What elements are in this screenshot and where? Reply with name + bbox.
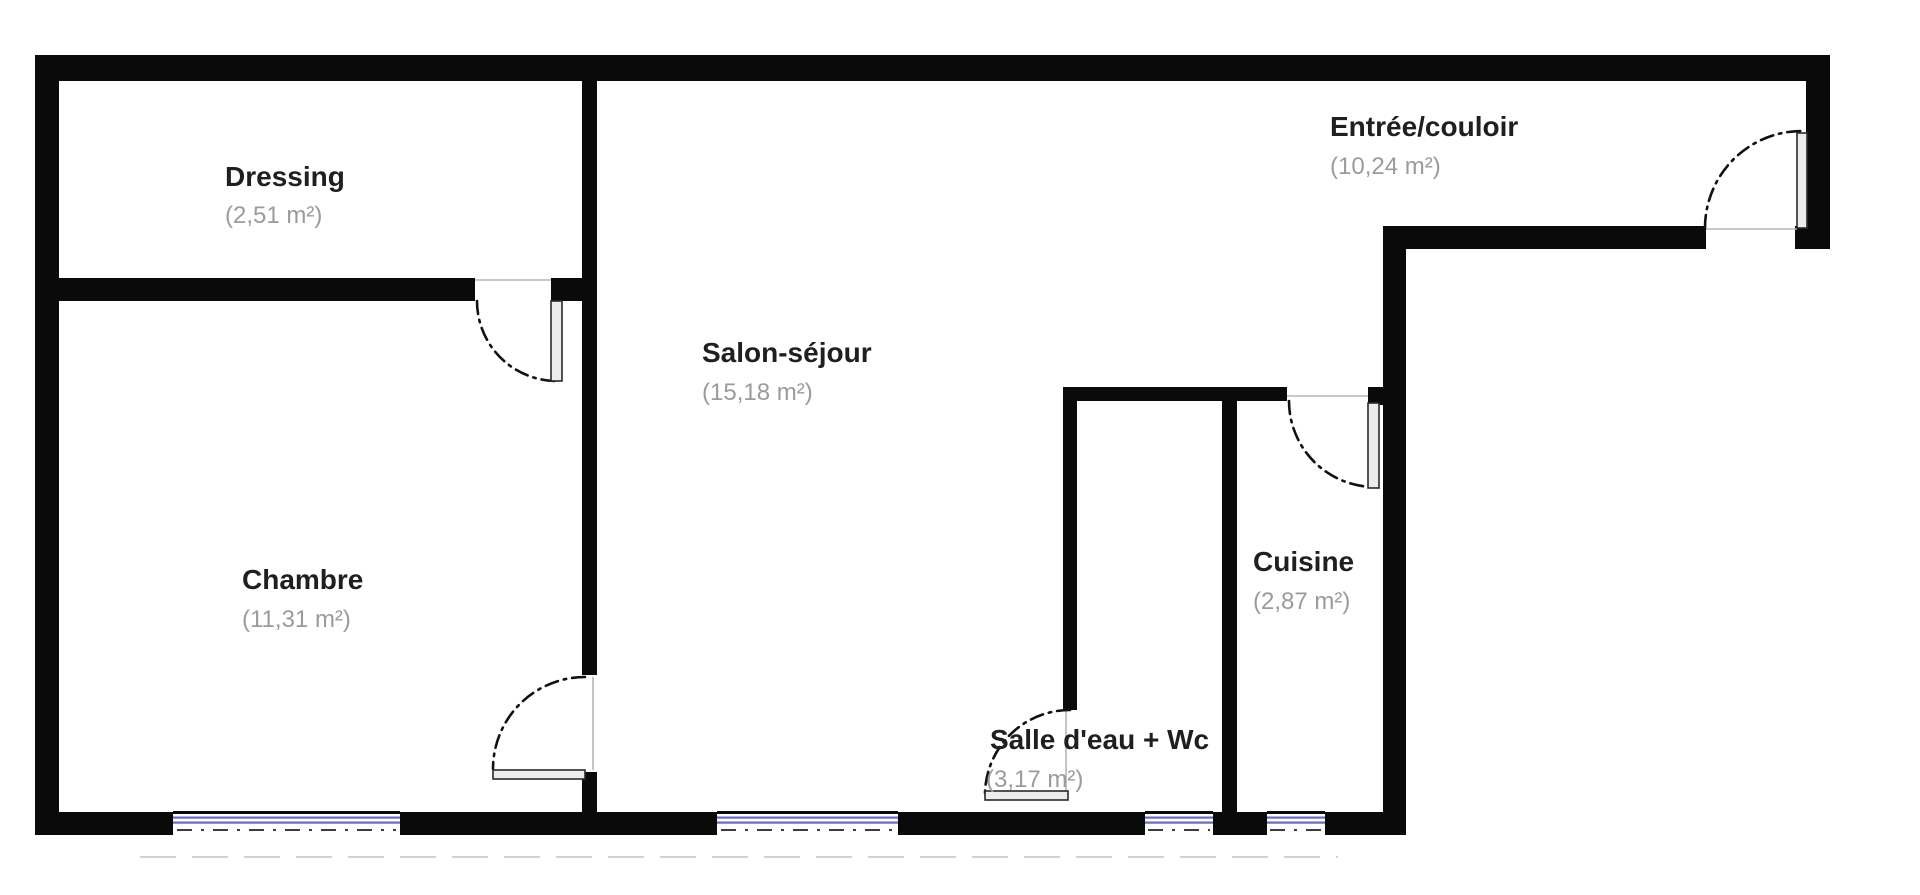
door-swing-arc (1705, 131, 1802, 228)
wall-salle-deau-cuisine-divider (1222, 387, 1237, 812)
door-leaf (493, 770, 585, 779)
window-frame (717, 811, 898, 814)
room-label-entree: Entrée/couloir (1330, 111, 1518, 142)
room-label-dressing: Dressing (225, 161, 345, 192)
door-swing-arc (477, 301, 557, 381)
window-frame (1145, 811, 1213, 814)
wall-dressing-bottom (59, 278, 475, 301)
wall-main-right (1383, 226, 1406, 835)
door-swing-arc (1289, 401, 1375, 487)
window-frame (1267, 811, 1325, 814)
wall-outer-left (35, 55, 59, 835)
window-glazing-line (1145, 817, 1213, 819)
room-labels: Dressing (2,51 m²) Chambre (11,31 m²) Sa… (225, 111, 1518, 793)
room-label-salon: Salon-séjour (702, 337, 872, 368)
room-area-cuisine: (2,87 m²) (1253, 588, 1350, 615)
wall-outer-right (1806, 55, 1830, 249)
windows (173, 811, 1325, 835)
window-frame (173, 811, 400, 814)
wall-outer-top (35, 55, 1830, 81)
dressing-door (475, 280, 562, 381)
room-area-dressing: (2,51 m²) (225, 202, 322, 229)
floor-plan: Dressing (2,51 m²) Chambre (11,31 m²) Sa… (0, 0, 1920, 895)
wall-corridor-bottom (1383, 226, 1706, 249)
room-label-salle-deau: Salle d'eau + Wc (990, 724, 1209, 755)
room-area-entree: (10,24 m²) (1330, 153, 1441, 180)
room-label-cuisine: Cuisine (1253, 546, 1354, 577)
window-glazing-line (1267, 822, 1325, 824)
room-label-chambre: Chambre (242, 564, 363, 595)
floor-plan-drawing: Dressing (2,51 m²) Chambre (11,31 m²) Sa… (0, 0, 1920, 895)
chambre-door (493, 677, 593, 779)
salle-deau-window (1145, 811, 1213, 835)
door-leaf (551, 301, 562, 381)
salon-window (717, 811, 898, 835)
wall-salle-deau-left (1063, 387, 1077, 710)
wall-salle-deau-top (1063, 387, 1287, 401)
entry-door (1705, 131, 1807, 229)
window-glazing-line (1145, 822, 1213, 824)
door-swing-arc (493, 677, 585, 769)
room-area-salon: (15,18 m²) (702, 379, 813, 406)
room-area-chambre: (11,31 m²) (242, 606, 351, 633)
cuisine-door (1287, 396, 1379, 488)
door-leaf (1368, 403, 1379, 488)
cuisine-window (1267, 811, 1325, 835)
door-leaf (1797, 133, 1807, 228)
wall-chambre-salon-divider (582, 81, 597, 675)
window-glazing-line (1267, 817, 1325, 819)
window-glazing-line (173, 822, 400, 824)
room-area-salle-deau: (3,17 m²) (986, 766, 1083, 793)
window-glazing-line (717, 822, 898, 824)
window-glazing-line (173, 817, 400, 819)
chambre-window (173, 811, 400, 835)
window-glazing-line (717, 817, 898, 819)
